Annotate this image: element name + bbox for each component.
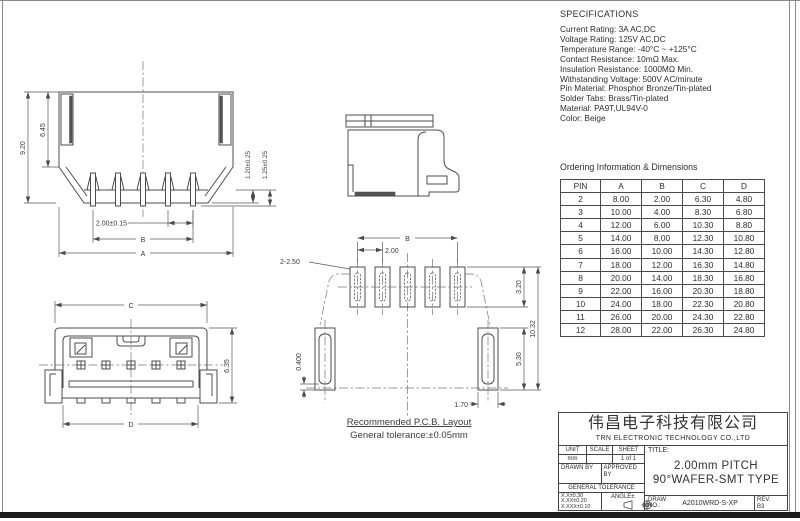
dimensions-table: PINABCD 28.002.006.304.80310.004.008.306… — [560, 179, 765, 337]
table-cell: 7 — [561, 258, 601, 271]
dim-d: D — [128, 422, 133, 429]
table-cell: 2 — [561, 193, 601, 206]
dim-table-header-cell: B — [642, 180, 683, 193]
top-view-drawing: C 6.35 D — [25, 283, 275, 458]
table-cell: 11 — [561, 310, 601, 323]
table-cell: 24.30 — [683, 310, 724, 323]
table-row: 718.0012.0016.3014.80 — [561, 258, 765, 271]
dim-table-header-cell: C — [683, 180, 724, 193]
table-cell: 20.80 — [724, 297, 765, 310]
table-cell: 9 — [561, 284, 601, 297]
table-cell: 8 — [561, 271, 601, 284]
company-block: 伟昌电子科技有限公司 TRN ELECTRONIC TECHNOLOGY CO.… — [559, 413, 787, 445]
scale-value — [587, 455, 613, 463]
ordering-title: Ordering Information & Dimensions — [560, 162, 697, 172]
table-cell: 12 — [561, 324, 601, 337]
dim-b: B — [141, 237, 146, 244]
table-cell: 18.00 — [642, 297, 683, 310]
table-cell: 14.00 — [642, 271, 683, 284]
unit-value: mm — [559, 455, 587, 463]
table-cell: 14.30 — [683, 245, 724, 258]
drawing-number: A2010WRD-S-XP — [666, 500, 754, 507]
table-cell: 8.80 — [724, 219, 765, 232]
table-cell: 20.30 — [683, 284, 724, 297]
unit-label: UNIT — [559, 446, 587, 454]
table-row: 922.0016.0020.3018.80 — [561, 284, 765, 297]
table-cell: 10.80 — [724, 232, 765, 245]
dim-table-body: 28.002.006.304.80310.004.008.306.80412.0… — [561, 193, 765, 337]
table-cell: 10.00 — [601, 206, 642, 219]
pcb-layout-drawing: B 2.00 2-2.50 3.20 5.30 10.32 1.70 0.400… — [278, 228, 552, 446]
table-cell: 12.00 — [642, 258, 683, 271]
table-cell: 8.00 — [601, 193, 642, 206]
table-cell: 24.80 — [724, 324, 765, 337]
revision-cell: REV. B3 — [754, 496, 787, 510]
title-block-left: UNIT SCALE SHEET mm 1 of 1 DRAWN BY APPR… — [559, 446, 645, 510]
table-cell: 18.80 — [724, 284, 765, 297]
table-cell: 4 — [561, 219, 601, 232]
frame-right-outer — [795, 0, 796, 512]
table-cell: 6.00 — [642, 219, 683, 232]
title-label: TITLE: — [648, 447, 669, 454]
table-cell: 18.30 — [683, 271, 724, 284]
dim-table-header-cell: A — [601, 180, 642, 193]
table-cell: 22.80 — [724, 310, 765, 323]
pcb-layout-subtitle: General tolerance:±0.05mm — [350, 430, 468, 441]
table-cell: 10.30 — [683, 219, 724, 232]
table-row: 28.002.006.304.80 — [561, 193, 765, 206]
table-cell: 4.80 — [724, 193, 765, 206]
table-row: 412.006.0010.308.80 — [561, 219, 765, 232]
table-row: 514.008.0012.3010.80 — [561, 232, 765, 245]
table-cell: 26.00 — [601, 310, 642, 323]
dim-height-body: 6.45 — [40, 123, 47, 137]
table-cell: 10 — [561, 297, 601, 310]
table-row: 820.0014.0018.3016.80 — [561, 271, 765, 284]
dim-height-total: 9.20 — [20, 141, 27, 155]
table-row: 616.0010.0014.3012.80 — [561, 245, 765, 258]
sheet-label: SHEET — [613, 446, 644, 454]
table-cell: 6.30 — [683, 193, 724, 206]
table-cell: 16.00 — [601, 245, 642, 258]
table-cell: 22.00 — [601, 284, 642, 297]
tolerance-line: X.XXX±0.10 — [561, 505, 601, 510]
table-cell: 16.00 — [642, 284, 683, 297]
rev-value: B3 — [757, 504, 787, 511]
dim-pcb-h1: 3.20 — [516, 280, 523, 294]
datasheet-page: 9.20 6.45 1.20±0.25 1.25±0.25 2.00±0.15 … — [0, 0, 800, 521]
table-cell: 14.80 — [724, 258, 765, 271]
pcb-dimensions: B 2.00 2-2.50 3.20 5.30 10.32 1.70 0.400 — [280, 236, 541, 409]
spec-line: Color: Beige — [560, 114, 788, 124]
table-cell: 22.30 — [683, 297, 724, 310]
projection-symbol-icon — [623, 500, 644, 510]
specifications-section: SPECIFICATIONS Current Rating: 3A AC,DCV… — [560, 9, 788, 124]
company-name-en: TRN ELECTRONIC TECHNOLOGY CO.,LTD — [559, 434, 787, 443]
table-cell: 8.30 — [683, 206, 724, 219]
table-cell: 12.30 — [683, 232, 724, 245]
table-cell: 14.00 — [601, 232, 642, 245]
dim-pcb-holes: 2-2.50 — [280, 259, 300, 266]
dim-pcb-b: B — [405, 236, 410, 243]
dim-pin-height-2: 1.25±0.25 — [262, 151, 269, 179]
table-cell: 4.00 — [642, 206, 683, 219]
specifications-lines: Current Rating: 3A AC,DCVoltage Rating: … — [560, 25, 788, 124]
dim-a: A — [141, 251, 146, 258]
dim-table-header-row: PINABCD — [561, 180, 765, 193]
title-block: 伟昌电子科技有限公司 TRN ELECTRONIC TECHNOLOGY CO.… — [558, 412, 788, 511]
table-row: 310.004.008.306.80 — [561, 206, 765, 219]
frame-top — [0, 0, 800, 1]
table-cell: 16.80 — [724, 271, 765, 284]
dim-pcb-w2: 0.400 — [296, 353, 303, 371]
sheet-value: 1 of 1 — [613, 455, 644, 463]
angle-cell: ANGLE± — [602, 493, 644, 510]
table-cell: 8.00 — [642, 232, 683, 245]
table-cell: 3 — [561, 206, 601, 219]
frame-left — [2, 0, 3, 512]
table-cell: 5 — [561, 232, 601, 245]
dim-pitch: 2.00±0.15 — [96, 221, 127, 228]
table-cell: 20.00 — [642, 310, 683, 323]
bottom-black-bar — [0, 512, 800, 518]
scale-label: SCALE — [587, 446, 613, 454]
table-cell: 12.80 — [724, 245, 765, 258]
pcb-layout-title: Recommended P.C.B. Layout — [347, 417, 472, 428]
table-row: 1228.0022.0026.3024.80 — [561, 324, 765, 337]
table-cell: 24.00 — [601, 297, 642, 310]
pcb-pin-pads — [338, 259, 472, 315]
front-dimensions: 9.20 6.45 1.20±0.25 1.25±0.25 2.00±0.15 … — [20, 92, 276, 258]
table-cell: 28.00 — [601, 324, 642, 337]
table-cell: 22.00 — [642, 324, 683, 337]
drawing-title-line1: 2.00mm PITCH — [645, 459, 787, 473]
frame-right-inner — [789, 0, 790, 512]
table-cell: 2.00 — [642, 193, 683, 206]
drawing-title-line2: 90°WAFER-SMT TYPE — [645, 473, 787, 487]
table-cell: 6 — [561, 245, 601, 258]
dim-pin-height-1: 1.20±0.25 — [245, 151, 252, 179]
specifications-title: SPECIFICATIONS — [560, 9, 788, 19]
side-body-outline — [346, 115, 459, 196]
table-row: 1024.0018.0022.3020.80 — [561, 297, 765, 310]
general-tolerance-label: GENERAL TOLERANCE — [559, 484, 644, 493]
pcb-solder-pads — [315, 320, 498, 403]
dim-table-header-cell: PIN — [561, 180, 601, 193]
front-view-drawing: 9.20 6.45 1.20±0.25 1.25±0.25 2.00±0.15 … — [18, 55, 300, 267]
dim-pcb-h2: 10.32 — [530, 320, 537, 338]
table-cell: 6.80 — [724, 206, 765, 219]
side-view-drawing — [332, 88, 468, 203]
table-cell: 26.30 — [683, 324, 724, 337]
table-cell: 20.00 — [601, 271, 642, 284]
tolerance-values: X.X±0.30X.XX±0.20X.XXX±0.10 — [559, 493, 602, 510]
dim-pcb-w1: 1.70 — [454, 402, 468, 409]
table-cell: 18.00 — [601, 258, 642, 271]
table-row: 1126.0020.0024.3022.80 — [561, 310, 765, 323]
table-cell: 10.00 — [642, 245, 683, 258]
drawn-by-label: DRAWN BY — [559, 464, 602, 483]
title-block-right: TITLE: 2.00mm PITCH 90°WAFER-SMT TYPE DR… — [645, 446, 787, 510]
drawing-title: 2.00mm PITCH 90°WAFER-SMT TYPE — [645, 459, 787, 487]
approved-by-label: APPROVED BY — [602, 464, 645, 483]
table-cell: 12.00 — [601, 219, 642, 232]
table-cell: 16.30 — [683, 258, 724, 271]
dim-table-header-cell: D — [724, 180, 765, 193]
company-name-cn: 伟昌电子科技有限公司 — [559, 413, 787, 434]
dim-c: C — [128, 303, 133, 310]
dim-pcb-h3: 5.30 — [516, 352, 523, 366]
dim-pcb-pitch: 2.00 — [385, 248, 399, 255]
dim-top-height: 6.35 — [224, 359, 231, 373]
